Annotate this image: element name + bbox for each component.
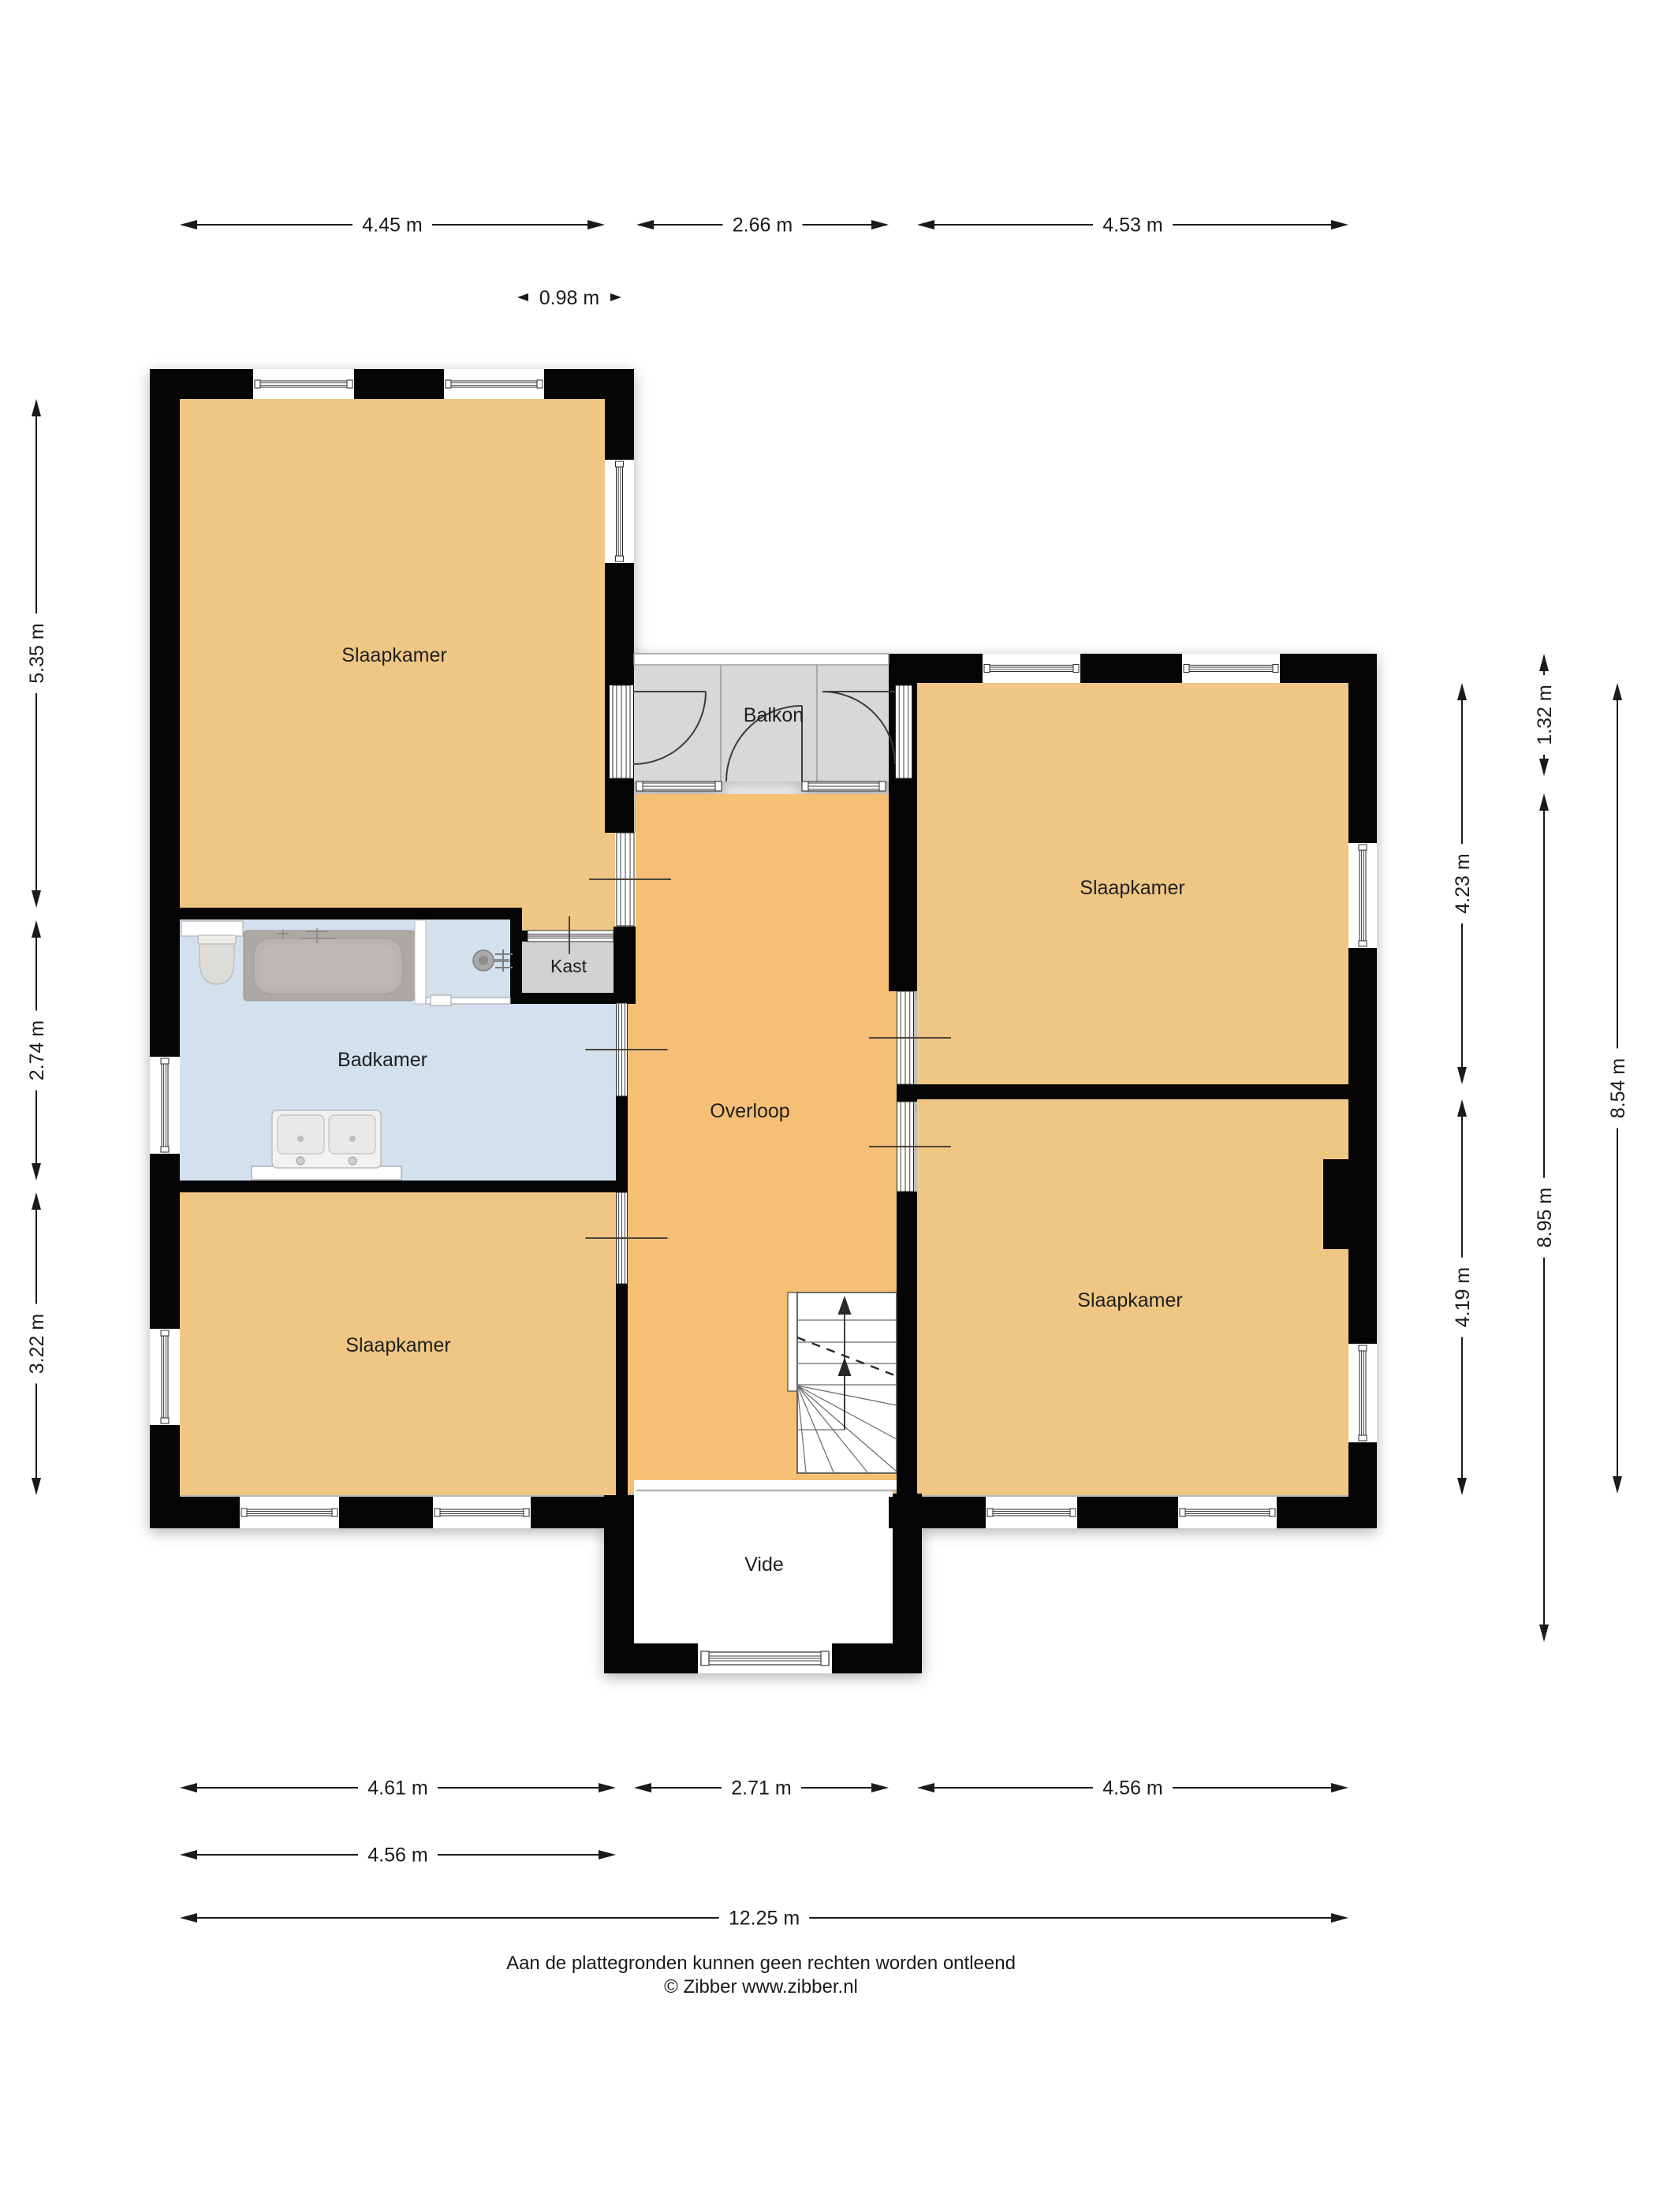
svg-text:Badkamer: Badkamer (338, 1049, 427, 1071)
svg-text:Aan de plattegronden kunnen ge: Aan de plattegronden kunnen geen rechten… (506, 1953, 1016, 1974)
svg-text:Slaapkamer: Slaapkamer (1080, 877, 1184, 899)
svg-text:Vide: Vide (744, 1554, 784, 1576)
svg-text:Balkon: Balkon (744, 704, 804, 726)
svg-text:8.54 m: 8.54 m (1607, 1058, 1629, 1118)
svg-text:Kast: Kast (550, 956, 587, 976)
svg-text:4.56 m: 4.56 m (1102, 1777, 1162, 1800)
svg-text:8.95 m: 8.95 m (1534, 1188, 1556, 1248)
svg-text:2.74 m: 2.74 m (26, 1020, 48, 1080)
svg-text:12.25 m: 12.25 m (729, 1908, 800, 1930)
svg-text:Slaapkamer: Slaapkamer (1077, 1289, 1182, 1311)
svg-text:Slaapkamer: Slaapkamer (341, 644, 446, 666)
svg-text:2.71 m: 2.71 m (731, 1777, 791, 1800)
svg-text:4.56 m: 4.56 m (367, 1845, 427, 1867)
svg-text:4.23 m: 4.23 m (1452, 853, 1474, 913)
svg-text:4.61 m: 4.61 m (367, 1777, 427, 1800)
svg-text:5.35 m: 5.35 m (26, 623, 48, 683)
svg-text:4.53 m: 4.53 m (1102, 214, 1162, 237)
svg-text:0.98 m: 0.98 m (539, 287, 599, 309)
svg-text:Slaapkamer: Slaapkamer (345, 1334, 450, 1356)
svg-text:2.66 m: 2.66 m (733, 214, 793, 237)
svg-text:© Zibber www.zibber.nl: © Zibber www.zibber.nl (664, 1976, 858, 1998)
svg-text:3.22 m: 3.22 m (26, 1314, 48, 1374)
svg-text:1.32 m: 1.32 m (1534, 684, 1556, 744)
svg-text:4.45 m: 4.45 m (362, 214, 422, 237)
svg-text:Overloop: Overloop (710, 1100, 789, 1122)
svg-text:4.19 m: 4.19 m (1452, 1267, 1474, 1327)
